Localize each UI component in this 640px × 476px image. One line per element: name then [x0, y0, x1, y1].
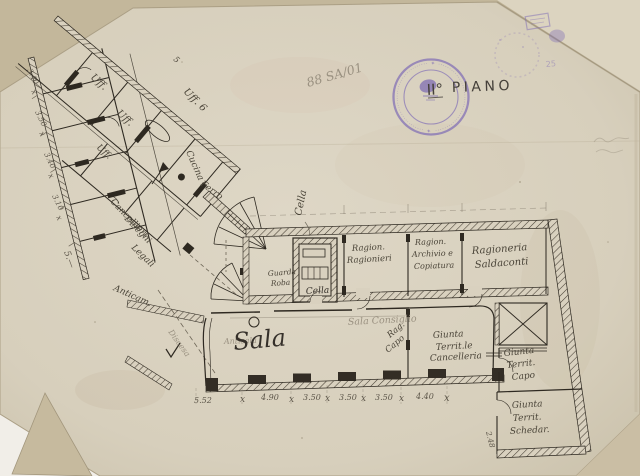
dim-x-mark: x: [361, 394, 366, 404]
dim-label: 4.40: [415, 392, 434, 401]
room-label-cella: Cella: [306, 286, 330, 297]
dim-x-mark: x: [444, 393, 450, 404]
dim-label: 3.50: [303, 393, 321, 402]
scanned-floor-plan-sheet: Uff. Uff. Uff. 5 Uff. 6 Cucina Ferro Can…: [0, 0, 640, 476]
room-label-giunta-sched-1: Giunta: [512, 399, 543, 411]
dim-label: 5.52: [194, 396, 212, 405]
stamp-smudge: [549, 30, 565, 43]
room-label-giunta-canc-1: Giunta: [433, 329, 464, 341]
room-label-giunta-sched-3: Schedar.: [510, 425, 550, 437]
room-label-sala: Sala: [232, 323, 287, 355]
room-label-archivio-2: Archivio e: [411, 249, 454, 259]
dim-label: 3.50: [339, 393, 357, 402]
dim-x-mark: x: [289, 395, 294, 405]
room-label-ragionieri-1: Ragion.: [351, 242, 386, 254]
corner-number: 25: [545, 59, 556, 69]
dim-x-mark: x: [325, 394, 330, 404]
room-label-guardaroba-2: Roba: [270, 278, 291, 288]
floor-number: II°: [426, 80, 443, 99]
dim-x-mark: x: [399, 394, 404, 404]
room-label-giunta-sched-2: Territ.: [513, 413, 542, 424]
room-label-archivio-1: Ragion.: [414, 237, 446, 247]
dim-label: 3.50: [375, 393, 393, 402]
dim-x-mark: x: [240, 395, 245, 405]
plan-drawing-canvas: Uff. Uff. Uff. 5 Uff. 6 Cucina Ferro Can…: [0, 0, 640, 476]
dim-label: 4.90: [260, 393, 279, 402]
room-label-archivio-3: Copiatura: [414, 261, 455, 271]
floor-word: PIANO: [452, 78, 514, 96]
